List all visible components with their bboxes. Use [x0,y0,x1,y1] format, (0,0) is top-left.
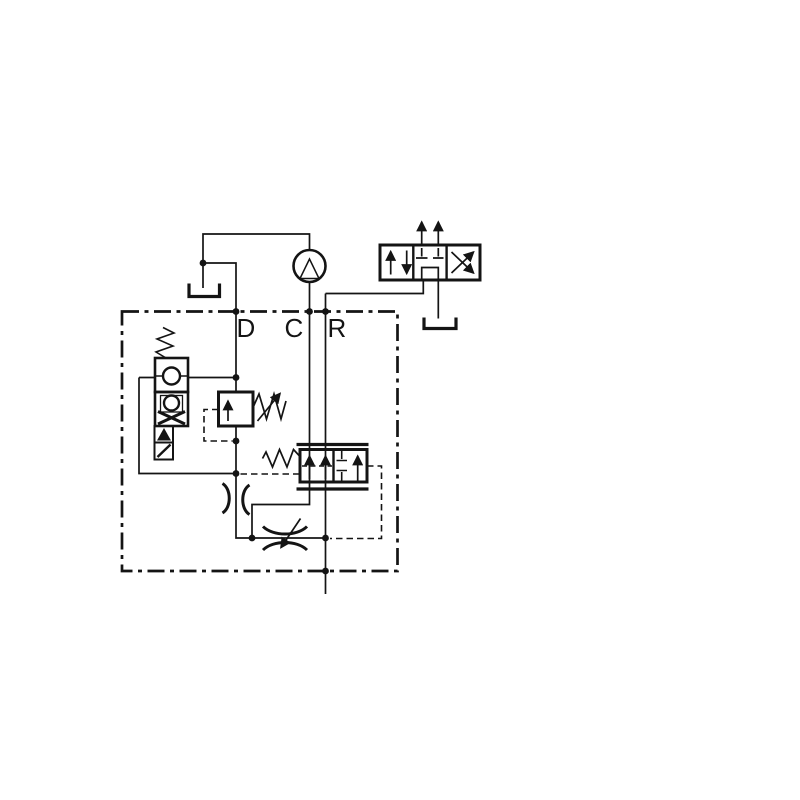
compensator-blocked-ports [337,450,348,483]
pump-triangle-icon [300,259,319,279]
junction-dot [233,470,240,477]
orifice-arc-right [243,485,250,515]
valve-seat-bowtie-icon [158,412,185,425]
center-box-bottom-bracket [422,268,439,281]
junction-dot [233,308,240,315]
junction-dot [322,568,329,575]
port-label-d: D [237,313,256,343]
line-d-upper [203,263,236,392]
solenoid-triangle-icon [157,428,171,441]
cartridge-upper-box [155,358,188,392]
schematic-canvas: D C R [0,0,800,800]
junction-dot [200,260,207,267]
relief-valve [219,392,287,426]
orifice-arc-left [223,484,230,514]
circuit-lines [139,234,438,594]
solenoid-coil-slash-icon [158,445,171,458]
port-labels: D C R [237,313,347,343]
junction-dot [233,374,240,381]
cartridge-spring-icon [156,328,174,359]
check-ball-icon-upper [163,368,180,385]
pressure-compensator-valve [263,445,369,490]
junction-dot [233,438,240,445]
pilot-compensator-right [330,466,382,539]
variable-flow-restrictor [263,519,307,551]
directional-valve-body [380,245,480,280]
junction-dot [306,308,313,315]
port-label-r: R [328,313,347,343]
relief-valve-body [219,392,254,426]
pump-motor-symbol [294,250,326,282]
restrictor-arc-top [263,527,307,535]
restrictor-arc-bottom [263,543,307,551]
line-tankbranch-to-pump [203,234,310,263]
directional-valve-dividers [413,245,446,280]
compensator-spring-icon [263,450,301,468]
tank-symbol-left [189,284,220,297]
port-label-c: C [285,313,304,343]
junction-dot [322,308,329,315]
center-box-blocked-ports [416,248,444,258]
check-valve-cartridge [155,328,189,460]
check-ball-icon-lower [164,396,179,411]
directional-valve-4-3 [380,222,480,280]
manifold-boundary [122,312,398,572]
junction-dot [322,535,329,542]
solenoid-symbol [155,426,174,460]
junction-dot [249,535,256,542]
hydraulic-circuit-diagram: D C R [0,0,800,800]
tank-symbol-right [424,318,456,329]
pump-circle [294,250,326,282]
